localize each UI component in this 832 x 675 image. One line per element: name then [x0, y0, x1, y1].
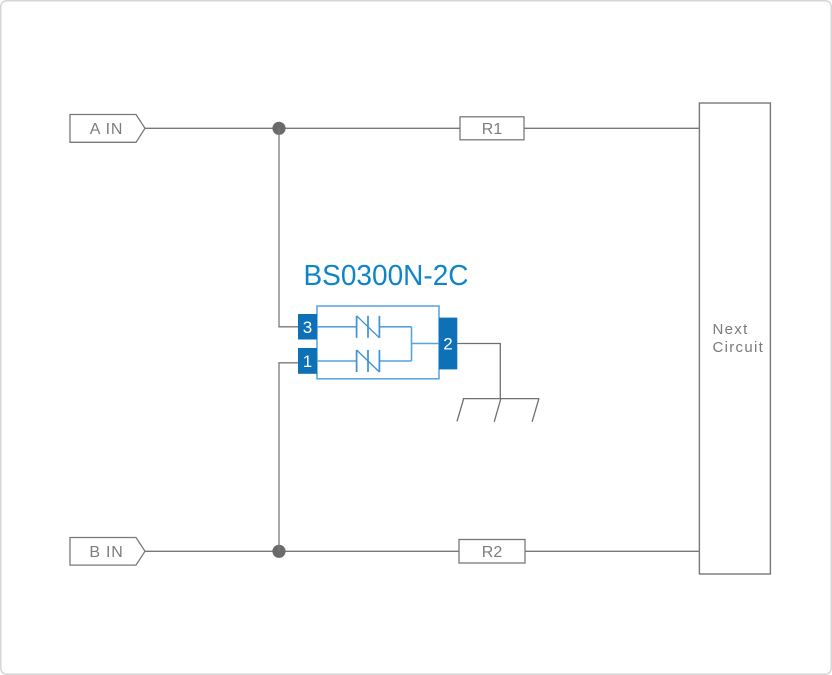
svg-text:R1: R1: [482, 121, 503, 138]
svg-text:R2: R2: [482, 544, 503, 561]
svg-text:1: 1: [303, 352, 312, 371]
svg-text:Circuit: Circuit: [713, 339, 765, 356]
svg-text:3: 3: [303, 318, 312, 337]
svg-text:A IN: A IN: [90, 121, 123, 138]
svg-text:Next: Next: [713, 321, 749, 338]
svg-text:2: 2: [443, 335, 452, 354]
svg-text:BS0300N-2C: BS0300N-2C: [304, 260, 469, 292]
svg-text:B IN: B IN: [89, 544, 123, 561]
